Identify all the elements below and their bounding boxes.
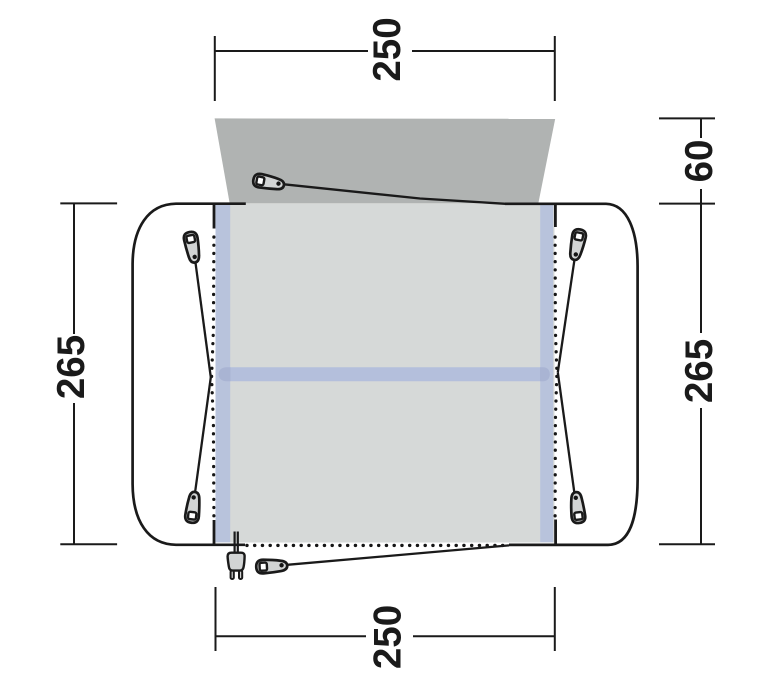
svg-text:250: 250 <box>366 605 409 669</box>
svg-text:265: 265 <box>678 339 721 403</box>
svg-text:265: 265 <box>50 335 93 399</box>
svg-text:250: 250 <box>366 17 409 81</box>
svg-text:60: 60 <box>678 140 721 183</box>
